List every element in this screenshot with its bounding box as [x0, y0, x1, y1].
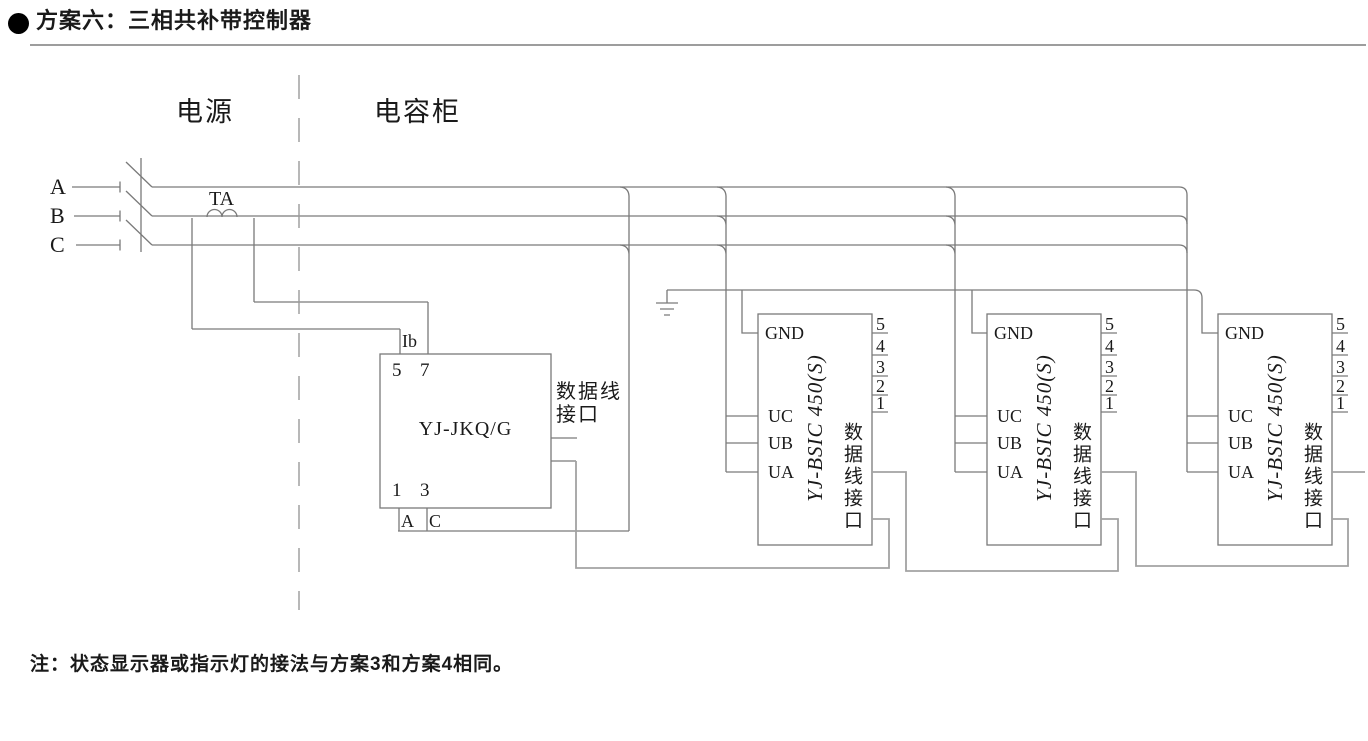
unit3-terminal-3: 3: [1336, 358, 1345, 376]
controller-terminal-7: 7: [420, 361, 430, 380]
unit1-terminal-3: 3: [876, 358, 885, 376]
unit2-name: YJ-BSIC 450(S): [1032, 343, 1056, 513]
ct-label: TA: [209, 189, 234, 209]
ct-secondary-leads: [192, 218, 254, 329]
unit2-terminal-1: 1: [1105, 394, 1114, 412]
unit2-ub-label: UB: [997, 434, 1022, 452]
unit3-ua-label: UA: [1228, 463, 1254, 481]
wiring-diagram-scheme6: 方案六：三相共补带控制器: [0, 0, 1368, 741]
ground-bus: [667, 290, 1218, 333]
unit3-uc-label: UC: [1228, 407, 1253, 425]
unit2-data-port-label: 数据线接口: [1069, 422, 1091, 537]
module2-phase-tap: [946, 187, 987, 472]
controller-data-port-line1: 数据线: [556, 381, 622, 404]
unit1-data-port-label: 数据线接口: [840, 422, 862, 537]
controller-data-stubs: [551, 438, 577, 461]
controller-terminal-5: 5: [392, 361, 402, 380]
controller-data-port-line2: 接口: [556, 404, 622, 427]
unit2-ua-label: UA: [997, 463, 1023, 481]
unit1-name: YJ-BSIC 450(S): [803, 343, 827, 513]
controller-terminal-3: 3: [420, 481, 430, 500]
unit2-terminal-3: 3: [1105, 358, 1114, 376]
unit3-terminal-1: 1: [1336, 394, 1345, 412]
module1-phase-tap: [717, 187, 758, 472]
phase-b-label: B: [50, 205, 65, 227]
controller-terminal-a: A: [401, 512, 414, 530]
unit1-terminal-1: 1: [876, 394, 885, 412]
controller-terminal-c: C: [429, 512, 441, 530]
unit1-terminal-5: 5: [876, 315, 885, 333]
ct-secondary-label: Ib: [402, 332, 417, 350]
ct-secondary-wires: [192, 302, 428, 354]
controller-data-port-label: 数据线 接口: [556, 381, 622, 427]
module3-phase-tap: [1187, 416, 1218, 472]
unit2-terminal-4: 4: [1105, 337, 1114, 355]
unit3-terminal-4: 4: [1336, 337, 1345, 355]
phase-a-bus: [152, 187, 1187, 195]
unit1-ua-label: UA: [768, 463, 794, 481]
unit2-terminal-5: 5: [1105, 315, 1114, 333]
unit1-uc-label: UC: [768, 407, 793, 425]
unit1-terminal-4: 4: [876, 337, 885, 355]
ground-symbol: [656, 290, 678, 315]
unit1-gnd-label: GND: [765, 324, 804, 342]
phase-b-bus: [152, 216, 1187, 224]
wire-layer: [72, 158, 1348, 545]
switch-blades: [126, 162, 152, 245]
unit3-data-port-label: 数据线接口: [1300, 422, 1322, 537]
controller-name: YJ-JKQ/G: [380, 419, 551, 439]
zone-label-power: 电源: [176, 99, 234, 126]
unit3-name: YJ-BSIC 450(S): [1263, 343, 1287, 513]
phase-a-label: A: [50, 176, 66, 198]
unit3-terminal-5: 5: [1336, 315, 1345, 333]
zone-label-capacitor-cabinet: 电容柜: [374, 99, 461, 126]
controller-terminal-1: 1: [392, 481, 402, 500]
unit1-ub-label: UB: [768, 434, 793, 452]
unit3-ub-label: UB: [1228, 434, 1253, 452]
phase-incoming-lines: [72, 187, 120, 245]
phase-c-label: C: [50, 234, 65, 256]
unit3-gnd-label: GND: [1225, 324, 1264, 342]
footnote: 注：状态显示器或指示灯的接法与方案3和方案4相同。: [30, 655, 513, 674]
controller-phase-tap: [398, 187, 629, 531]
phase-c-bus: [152, 245, 1187, 253]
unit2-uc-label: UC: [997, 407, 1022, 425]
unit2-gnd-label: GND: [994, 324, 1033, 342]
